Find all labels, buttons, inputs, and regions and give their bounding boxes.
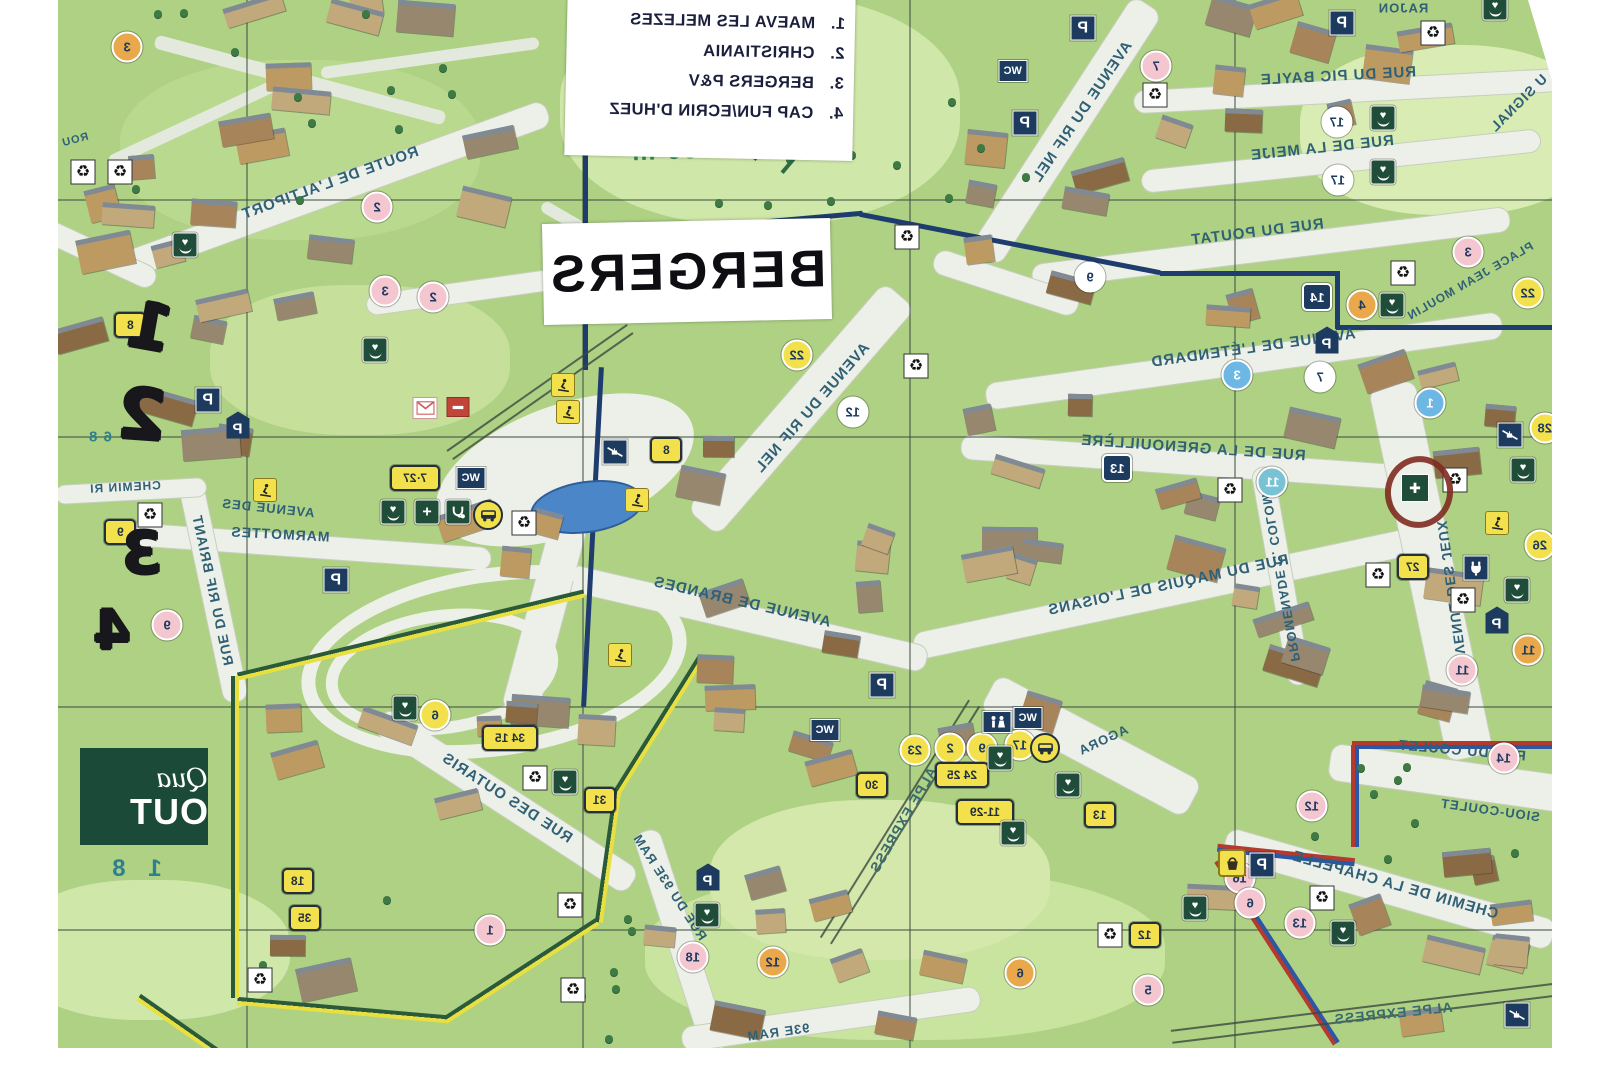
handwritten-number: 2 [115, 372, 169, 457]
road-minor [320, 37, 540, 80]
parking-icon: P [1013, 111, 1038, 136]
quartier-script-label: Qua [90, 763, 208, 793]
map-marker: 2 [362, 192, 393, 223]
building [755, 908, 785, 934]
map-marker: 30 [856, 772, 888, 798]
tree [231, 48, 239, 56]
wc-icon: WC [457, 467, 486, 489]
building [295, 958, 357, 1003]
heart-label-icon: ♥ [173, 233, 198, 258]
handwritten-number: 3 [122, 519, 162, 587]
boundary-line-piste [231, 676, 239, 998]
grid-line [58, 436, 1606, 438]
building [822, 630, 861, 657]
tree [1357, 764, 1365, 772]
building [265, 62, 311, 91]
map-marker: 12 [1129, 922, 1161, 948]
street-label: ROU [60, 131, 90, 150]
tree [387, 86, 395, 94]
heart-label-icon: ♥ [1183, 896, 1208, 921]
heart-label-icon: ♥ [1371, 106, 1396, 131]
recycle-icon: ♻ [1098, 923, 1123, 948]
recycle-icon: ♻ [1391, 261, 1416, 286]
wc-figures-icon [983, 711, 1012, 733]
tree [1511, 849, 1519, 857]
scan-margin-right [1552, 0, 1606, 1070]
map-marker: 12 [1297, 791, 1328, 822]
legend-item-name: MAEVA LES MELEZES [629, 4, 815, 38]
tree [764, 201, 772, 209]
legend-item-name: CAP FUN/ECRIN D'HUEZ [609, 94, 814, 128]
building [964, 234, 996, 264]
recycle-icon: ♻ [523, 766, 548, 791]
map-marker: 3 [112, 32, 143, 63]
building [1225, 108, 1263, 133]
street-label: RAJON [1378, 1, 1429, 16]
tree [154, 10, 162, 18]
boundary-line-navy [1160, 271, 1337, 276]
heart-label-icon: ♥ [695, 903, 720, 928]
tree [132, 185, 140, 193]
building [506, 700, 538, 723]
bus-icon [1030, 733, 1060, 763]
recycle-icon: ♻ [1366, 563, 1391, 588]
skier-icon [1485, 511, 1509, 535]
heart-label-icon: ♥ [393, 696, 418, 721]
skier-icon [625, 488, 649, 512]
map-marker: 26 [1525, 530, 1556, 561]
building [1442, 847, 1492, 876]
map-marker: 4 [1347, 290, 1378, 321]
quarter-title-box: BERGERS [542, 218, 832, 325]
map-marker: 18 [282, 868, 314, 894]
map-marker: 13 [1285, 908, 1316, 939]
building [223, 0, 286, 28]
legend-item-number: 4. [813, 98, 844, 129]
parking-house-icon: P [1486, 607, 1509, 634]
building [265, 704, 301, 734]
building [964, 129, 1008, 168]
medical-icon: + [415, 500, 440, 525]
skilift-icon [603, 440, 628, 465]
recycle-icon: ♻ [512, 511, 537, 536]
map-marker: 14 [1489, 743, 1520, 774]
parking-icon: P [324, 568, 349, 593]
map-marker: 9 [1075, 262, 1106, 293]
legend-item: 4. CAP FUN/ECRIN D'HUEZ [575, 93, 844, 129]
building [696, 654, 733, 683]
building [963, 403, 996, 435]
legend-item-number: 3. [814, 68, 845, 99]
recycle-icon: ♻ [895, 225, 920, 250]
map-marker: 13 [1102, 454, 1132, 482]
stethoscope-icon [446, 500, 471, 525]
parking-icon: P [1071, 16, 1096, 41]
map-marker: 12 [838, 397, 869, 428]
building [703, 436, 735, 457]
building [1155, 114, 1193, 147]
tree [308, 119, 316, 127]
tree [1411, 819, 1419, 827]
heart-label-icon: ♥ [1380, 293, 1405, 318]
map-marker: 9 [152, 610, 183, 641]
heart-label-icon: ♥ [1511, 458, 1536, 483]
tree [1403, 763, 1411, 771]
map-marker: 3 [1222, 360, 1253, 391]
building [1422, 934, 1485, 973]
skilift-icon [1498, 423, 1523, 448]
tree [610, 968, 618, 976]
map-marker: 6 [1235, 888, 1266, 919]
building [434, 789, 482, 820]
tree [439, 64, 447, 72]
building [306, 235, 354, 264]
building [1205, 304, 1250, 327]
plug-icon [1464, 556, 1489, 581]
parking-icon: P [196, 388, 221, 413]
target-marker-icon: ✚ [1385, 456, 1445, 520]
wc-icon: WC [999, 60, 1028, 82]
map-marker: 12 [758, 947, 789, 978]
heart-label-icon: ♥ [363, 338, 388, 363]
boundary-line-piste [443, 918, 600, 1024]
map-marker: 7 [1305, 362, 1336, 393]
building [1249, 0, 1303, 30]
recycle-icon: ♻ [1451, 588, 1476, 613]
tree [1370, 790, 1378, 798]
grid-line [909, 0, 911, 1048]
skilift-icon [1505, 1003, 1530, 1028]
map-marker: 5 [1133, 975, 1164, 1006]
tree [448, 90, 456, 98]
tree [624, 915, 632, 923]
map-marker: 7·27 [390, 465, 440, 491]
recycle-icon: ♻ [248, 968, 273, 993]
map-marker: 11 [1257, 467, 1288, 498]
tree [180, 9, 188, 17]
boundary-line-piste [237, 997, 446, 1023]
map-marker: 34 15 [482, 725, 538, 751]
building [856, 580, 883, 613]
recycle-icon: ♻ [1421, 21, 1446, 46]
map-marker: 2 [935, 733, 966, 764]
map-marker: 35 [289, 905, 321, 931]
building [1493, 934, 1530, 968]
recycle-icon: ♻ [71, 160, 96, 185]
building [643, 924, 676, 947]
tree [1311, 832, 1319, 840]
wc-icon: WC [811, 719, 840, 741]
legend-item-number: 1. [815, 8, 846, 39]
street-label: 6 8 [88, 429, 112, 446]
heart-label-icon: ♥ [1056, 773, 1081, 798]
tree [628, 927, 636, 935]
mail-red-icon [447, 397, 470, 417]
map-marker: 3 [370, 276, 401, 307]
map-marker: 3 [1453, 237, 1484, 268]
skier-icon [556, 400, 580, 424]
building [1283, 406, 1341, 448]
building [396, 0, 456, 37]
boundary-line-redblue [1351, 745, 1359, 847]
building [190, 198, 236, 227]
handwritten-number: 4 [93, 599, 131, 662]
handwritten-number: 1 [122, 288, 179, 369]
quartier-outaris-box: Qua OUT [80, 748, 208, 845]
mail-icon [413, 397, 438, 419]
recycle-icon: ♻ [1143, 83, 1168, 108]
map-marker: 13 [1084, 802, 1116, 828]
tree [612, 985, 620, 993]
map-marker: 24 25 [935, 762, 989, 788]
parking-icon: P [1330, 11, 1355, 36]
heart-label-icon: ♥ [1505, 578, 1530, 603]
map-marker: 2 [418, 282, 449, 313]
map-marker: 6 [420, 700, 451, 731]
tree [715, 199, 723, 207]
map-marker: 8 [650, 437, 682, 463]
tree [605, 1035, 613, 1043]
tree [945, 194, 953, 202]
heart-label-icon: ♥ [1371, 160, 1396, 185]
map-marker: 11 [1447, 655, 1478, 686]
map-marker: 31 [584, 787, 616, 813]
map-marker: 17 [1322, 107, 1353, 138]
building [1062, 186, 1111, 215]
map-marker: 22 [1513, 278, 1544, 309]
skier-icon [551, 373, 575, 397]
building [1417, 361, 1459, 389]
parking-icon: P [1250, 853, 1275, 878]
basket-icon [1218, 849, 1246, 877]
recycle-icon: ♻ [1310, 886, 1335, 911]
map-marker: 17 [1323, 165, 1354, 196]
recycle-icon: ♻ [904, 354, 929, 379]
building [1231, 584, 1259, 610]
recycle-icon: ♻ [108, 160, 133, 185]
map-marker: 14 [1302, 283, 1332, 311]
heart-label-icon: ♥ [988, 746, 1013, 771]
quartier-name-label: OUT [90, 793, 208, 831]
recycle-icon: ♻ [1218, 478, 1243, 503]
building [1213, 65, 1246, 97]
building [52, 316, 109, 354]
tree [395, 125, 403, 133]
legend-item-name: CHRISTIANIA [702, 36, 814, 68]
legend-box: 1. MAEVA LES MELEZES 2. CHRISTIANIA 3. B… [564, 0, 855, 161]
map-marker: 18 [678, 942, 709, 973]
building [101, 202, 154, 228]
boundary-line-navy [1335, 271, 1340, 329]
resort-map: 1. MAEVA LES MELEZES 2. CHRISTIANIA 3. B… [0, 0, 1606, 1070]
building [457, 186, 513, 228]
heart-label-icon: ♥ [553, 770, 578, 795]
building [705, 684, 756, 711]
heart-label-icon: ♥ [381, 500, 406, 525]
scanned-resort-map-page: 1. MAEVA LES MELEZES 2. CHRISTIANIA 3. B… [0, 0, 1606, 1070]
tree [977, 144, 985, 152]
legend-item-name: BERGERS P&V [688, 66, 814, 99]
map-marker: 7 [1141, 51, 1172, 82]
building [1068, 393, 1093, 415]
building [129, 154, 156, 180]
tree [362, 10, 370, 18]
map-marker: 11 [1513, 635, 1544, 666]
building [577, 714, 616, 746]
wc-icon: WC [1014, 707, 1043, 729]
scan-margin-bottom [0, 1048, 1606, 1070]
map-marker: 27 [1397, 554, 1429, 580]
quartier-altitude-partial: 1 8 [104, 855, 161, 883]
heart-label-icon: ♥ [1483, 0, 1508, 21]
bus-icon [473, 500, 503, 530]
heart-label-icon: ♥ [1331, 921, 1356, 946]
skier-icon [253, 478, 277, 502]
parking-icon: P [870, 673, 895, 698]
map-marker: 6 [1005, 958, 1036, 989]
recycle-icon: ♻ [561, 978, 586, 1003]
building [499, 545, 531, 577]
building [713, 707, 744, 731]
heart-label-icon: ♥ [1001, 821, 1026, 846]
tree [1384, 855, 1392, 863]
tree [294, 93, 302, 101]
scan-margin-left [0, 0, 58, 1070]
map-marker: 1 [475, 915, 506, 946]
map-marker: 1 [1415, 388, 1446, 419]
building [271, 740, 325, 780]
tree [383, 896, 391, 904]
map-marker: 22 [782, 340, 813, 371]
legend-item-number: 2. [814, 38, 845, 69]
building [270, 935, 305, 957]
map-marker: 23 [900, 735, 931, 766]
building [965, 180, 996, 207]
recycle-icon: ♻ [558, 893, 583, 918]
skier-icon [608, 643, 632, 667]
quarter-title: BERGERS [547, 239, 826, 305]
